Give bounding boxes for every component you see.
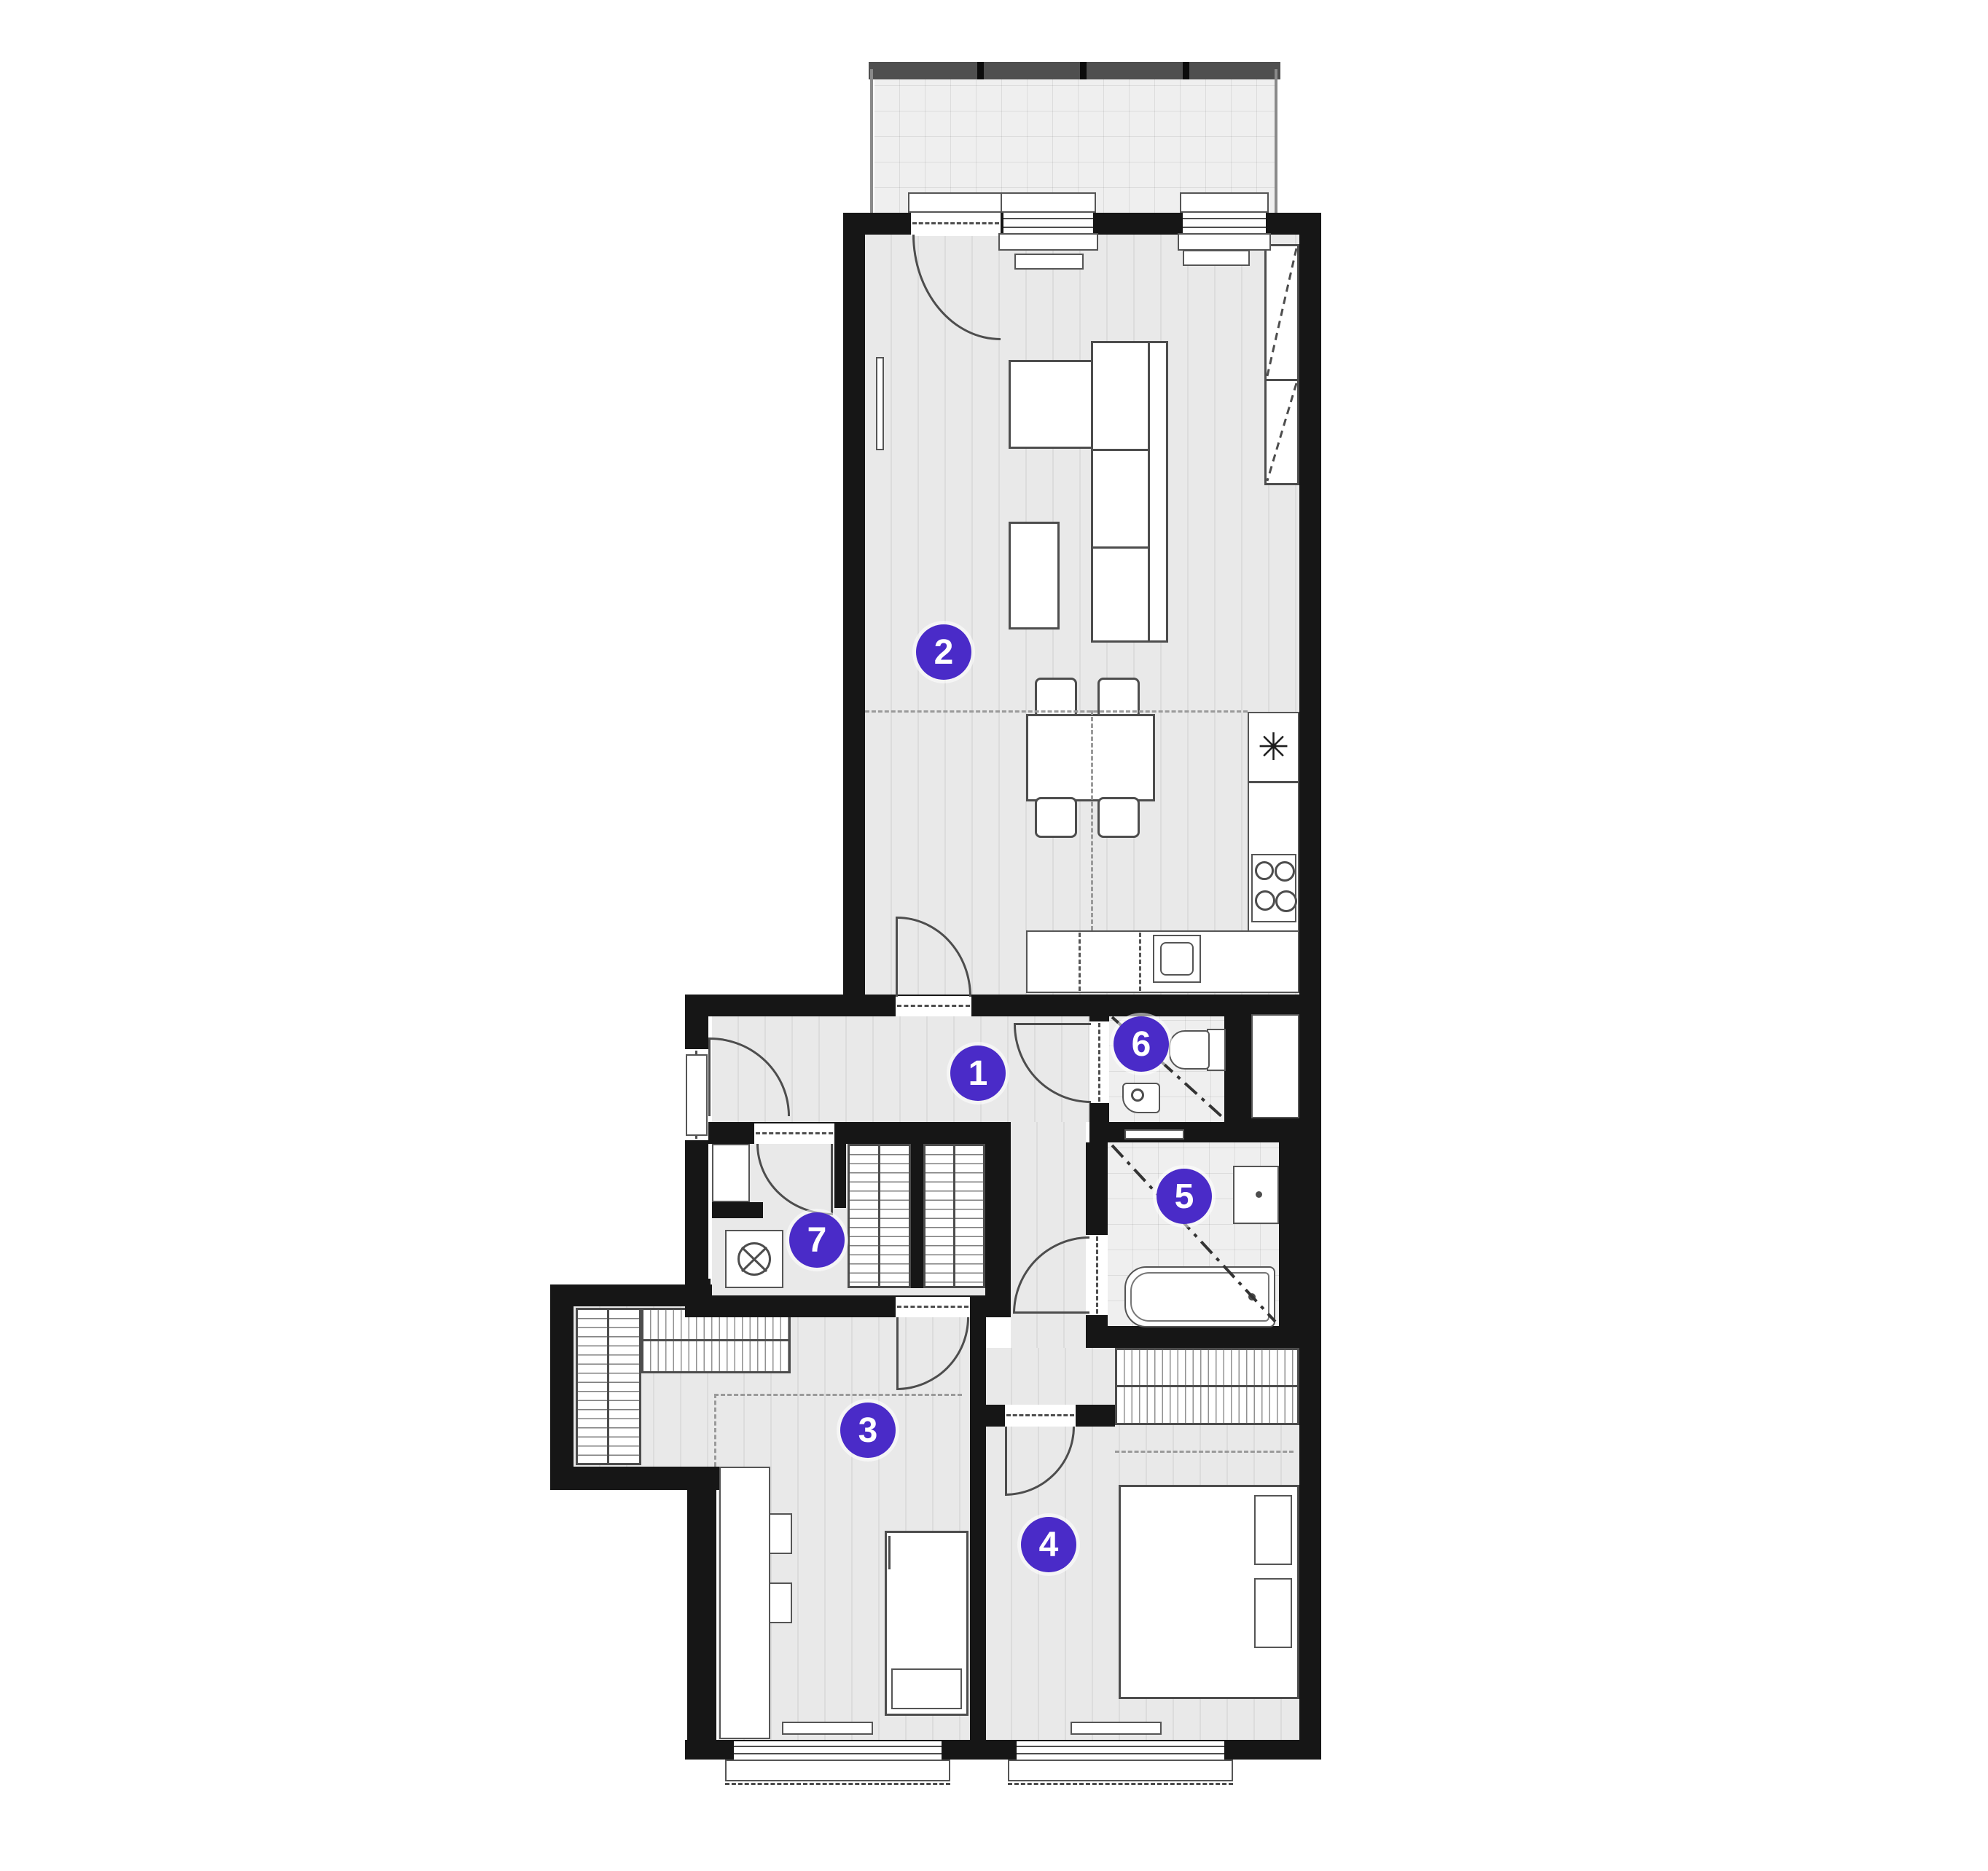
dishwasher	[1079, 933, 1141, 991]
coffee-table	[1009, 522, 1060, 629]
wall-left-living	[843, 213, 865, 1016]
desk-chair	[769, 1582, 792, 1623]
balcony-floor	[874, 69, 1275, 213]
wardrobe-living-shelf	[1264, 379, 1299, 381]
zone-line-bedroom3	[714, 1394, 962, 1396]
towel-radiator	[1124, 1129, 1184, 1140]
shaft-wc	[1251, 1014, 1299, 1118]
fridge-icon: ✳	[1248, 718, 1299, 777]
wall-alcove-left	[550, 1284, 574, 1490]
wall-bedroom4-entry-stub	[985, 1405, 1005, 1427]
balcony-railing-post	[977, 62, 984, 79]
wall-right	[1299, 213, 1321, 1760]
window-glazing	[1183, 218, 1266, 219]
zone-line-bedroom3-v	[714, 1394, 716, 1467]
window-sill-outer	[725, 1760, 950, 1781]
wall	[911, 1144, 923, 1288]
radiator-bedroom3	[782, 1722, 873, 1735]
wardrobe-rail	[878, 1144, 880, 1288]
wall-bath-bottom	[1086, 1326, 1321, 1348]
bath-door-threshold	[1096, 1236, 1098, 1314]
balcony-door-threshold	[912, 222, 999, 224]
wardrobe-rail	[953, 1144, 955, 1288]
kitchen-sink-basin	[1160, 942, 1194, 976]
cooktop-burner	[1275, 861, 1295, 882]
sofa-backrest-line	[1148, 343, 1150, 640]
sofa-body	[1091, 341, 1168, 643]
bed-pillow	[891, 1668, 962, 1709]
bedroom4-door-threshold	[1006, 1414, 1074, 1416]
zone-line-bedroom4	[1115, 1451, 1294, 1453]
wall-wc-right	[1224, 1013, 1251, 1126]
window-sill	[908, 192, 1003, 213]
room-1-badge: 1	[950, 1046, 1006, 1101]
wall-bedroom3-left	[687, 1467, 716, 1760]
zone-line-living	[865, 710, 1248, 713]
radiator-bedroom4	[1071, 1722, 1162, 1735]
desk-bedroom3	[719, 1467, 770, 1739]
window-glazing	[734, 1753, 942, 1754]
balcony-railing-top	[869, 62, 1280, 79]
living-room-floor	[865, 235, 1299, 995]
closet-door-threshold	[756, 1132, 833, 1134]
bed-pillow	[1254, 1578, 1292, 1648]
sofa-cushion-line	[1093, 546, 1148, 549]
dining-chair	[1035, 797, 1077, 838]
balcony-railing-post	[1183, 62, 1189, 79]
wall-shaft-bottom	[1251, 1118, 1299, 1142]
window-glazing	[1017, 1753, 1224, 1754]
room-2-badge: 2	[916, 624, 971, 680]
zone-line-kitchen	[1091, 710, 1093, 930]
wardrobe-rail	[641, 1339, 791, 1341]
toilet-bowl	[1169, 1030, 1210, 1070]
window-sill-fringe	[725, 1783, 950, 1785]
desk-chair	[769, 1513, 792, 1554]
radiator-living-left	[876, 357, 884, 450]
balcony-railing-right	[1275, 69, 1281, 213]
window-glazing	[1183, 227, 1266, 228]
room-5-badge: 5	[1157, 1169, 1212, 1224]
radiator-window	[1014, 254, 1084, 270]
window-sill-outer	[1008, 1760, 1233, 1781]
floor-plan: ✳	[0, 0, 1988, 1871]
window-sill-fringe	[1008, 1783, 1233, 1785]
bedroom3-door-threshold	[897, 1306, 968, 1308]
room-7-badge: 7	[789, 1212, 845, 1268]
shaft-closet	[712, 1144, 750, 1202]
window-glazing	[734, 1746, 942, 1747]
wall-joiner	[685, 1279, 711, 1301]
living-door-threshold	[897, 1005, 970, 1007]
window-sill-inner	[998, 233, 1098, 251]
wall-closet-right	[985, 1122, 1011, 1317]
window-bedroom3	[734, 1741, 942, 1760]
sofa-cushion-line	[1093, 449, 1148, 451]
cooktop-burner	[1255, 861, 1274, 880]
wardrobe-rail	[607, 1308, 609, 1465]
window-glazing	[1003, 218, 1093, 219]
wc-door-threshold	[1098, 1023, 1100, 1102]
bed-headboard-line	[888, 1536, 891, 1569]
cooktop-burner	[1275, 890, 1297, 912]
window-sill-inner	[1178, 233, 1271, 251]
wall-stub	[834, 1122, 846, 1208]
wardrobe-rail	[1115, 1385, 1299, 1387]
wardrobe-living	[1264, 244, 1299, 485]
room-4-badge: 4	[1021, 1517, 1076, 1572]
radiator-window	[1183, 250, 1250, 266]
wall-hall-closet	[685, 1122, 1011, 1144]
window-sill	[1001, 192, 1096, 213]
cooktop-burner	[1255, 890, 1275, 911]
balcony-railing-left	[870, 69, 877, 213]
balcony-railing-post	[1080, 62, 1087, 79]
room-6-badge: 6	[1114, 1016, 1169, 1072]
basin-drain	[1256, 1191, 1262, 1198]
basin-tap	[1131, 1089, 1144, 1102]
bathtub-drain	[1248, 1293, 1256, 1301]
wall-bath-right	[1279, 1142, 1299, 1326]
window-glazing	[1017, 1746, 1224, 1747]
window-bedroom4	[1017, 1741, 1224, 1760]
wall	[712, 1202, 763, 1218]
window-glazing	[1003, 227, 1093, 228]
washing-machine-drum	[737, 1242, 771, 1276]
wall-divider-3-4	[970, 1317, 986, 1740]
dining-chair	[1097, 797, 1140, 838]
room-3-badge: 3	[840, 1403, 896, 1458]
window-sill	[1180, 192, 1269, 213]
bed-pillow	[1254, 1495, 1292, 1565]
fridge-separator	[1248, 781, 1299, 783]
wall-bedroom4-entry	[1076, 1405, 1115, 1427]
entry-door-panel	[686, 1054, 708, 1136]
